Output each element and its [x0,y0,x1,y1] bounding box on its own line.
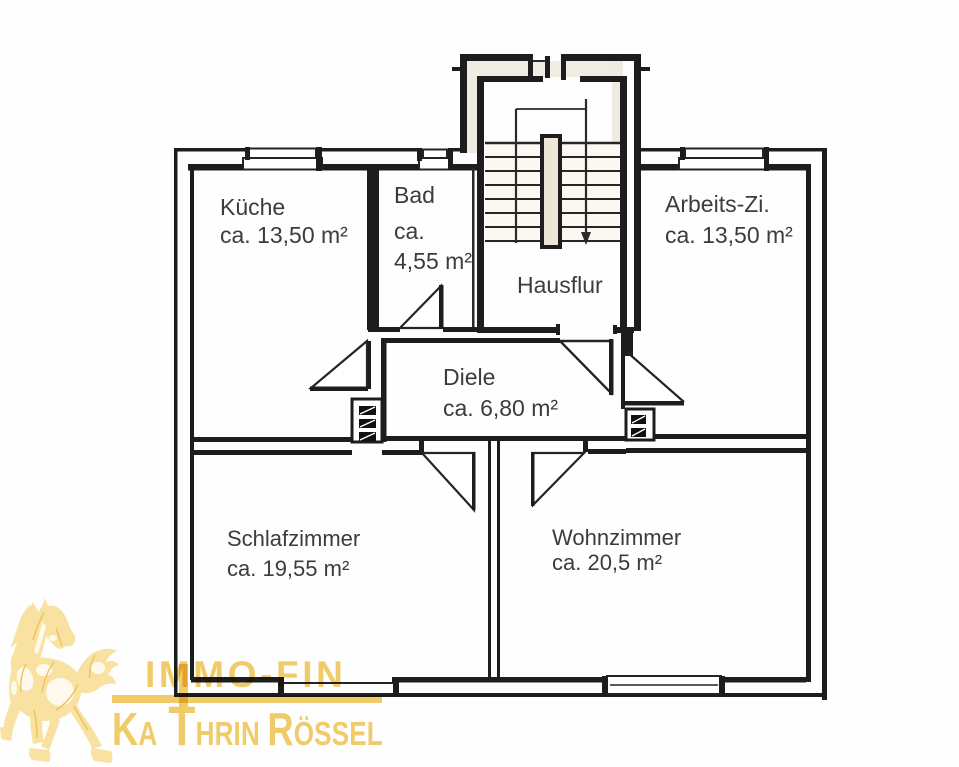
svg-text:ca.: ca. [394,218,425,244]
svg-text:Diele: Diele [443,364,495,390]
svg-text:Wohnzimmer: Wohnzimmer [552,525,681,550]
svg-text:IMMO-FIN: IMMO-FIN [145,654,346,695]
svg-text:ca. 13,50 m²: ca. 13,50 m² [665,222,793,248]
svg-text:ca. 13,50 m²: ca. 13,50 m² [220,222,348,248]
svg-text:ca. 20,5 m²: ca. 20,5 m² [552,550,662,575]
svg-text:Schlafzimmer: Schlafzimmer [227,526,360,551]
svg-text:ca. 19,55 m²: ca. 19,55 m² [227,556,349,581]
svg-text:4,55 m²: 4,55 m² [394,248,472,274]
svg-text:Arbeits-Zi.: Arbeits-Zi. [665,191,770,217]
svg-text:Küche: Küche [220,194,285,220]
svg-text:Bad: Bad [394,182,435,208]
svg-text:ca. 6,80 m²: ca. 6,80 m² [443,395,558,421]
svg-text:Hausflur: Hausflur [517,272,603,298]
